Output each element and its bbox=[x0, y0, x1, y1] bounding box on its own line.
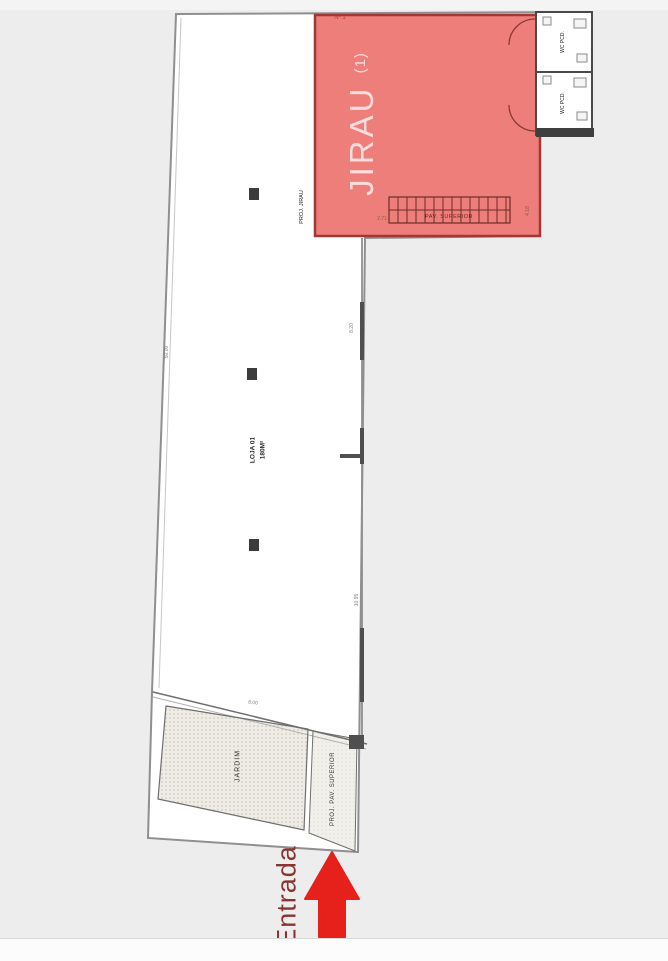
wc-wall-hatch bbox=[536, 128, 594, 137]
column-marker-1 bbox=[249, 188, 259, 200]
unit-number-label: Nº 1 bbox=[334, 15, 346, 21]
wc-top-label: WC PCD. bbox=[560, 31, 566, 53]
mezzanine-projection-label: PROJ. JIRAU bbox=[299, 190, 305, 224]
dimension-stair-right: 4.18 bbox=[525, 206, 531, 216]
store-name: LOJA 01 bbox=[249, 437, 256, 463]
lot-boundary-inner-line bbox=[159, 18, 181, 688]
stairs-label: PAV. SUPERIOR bbox=[425, 214, 473, 220]
dimension-left-boundary: 50.00 bbox=[164, 346, 170, 359]
garden-division-line bbox=[153, 692, 367, 744]
wall-chunk bbox=[349, 735, 364, 749]
page-bottom-bar bbox=[0, 938, 668, 961]
upper-floor-projection-label: PROJ. PAV. SUPERIOR bbox=[330, 752, 336, 826]
garden-label: JARDIM bbox=[235, 750, 242, 782]
wc-bottom-label: WC PCD. bbox=[560, 92, 566, 114]
mezzanine-label-text: JIRAU bbox=[343, 86, 380, 196]
garden-division-line-2 bbox=[153, 697, 366, 749]
dimension-lower-right-wall: 10.95 bbox=[354, 594, 360, 607]
mezzanine-label: JIRAU (1) bbox=[343, 52, 381, 196]
column-marker-3 bbox=[249, 539, 259, 551]
store-label: LOJA 01 180M² bbox=[248, 437, 268, 463]
dimension-mid-right-wall: 8.20 bbox=[349, 323, 355, 333]
entrance-label: Entrada bbox=[272, 845, 303, 947]
entrance-arrow-icon bbox=[305, 852, 359, 937]
dimension-stair-left: 2.71 bbox=[377, 216, 387, 222]
column-marker-2 bbox=[247, 368, 257, 380]
dimension-garden-top: 8.00 bbox=[248, 699, 258, 706]
mezzanine-label-suffix: (1) bbox=[352, 52, 369, 73]
store-area: 180M² bbox=[259, 441, 266, 459]
